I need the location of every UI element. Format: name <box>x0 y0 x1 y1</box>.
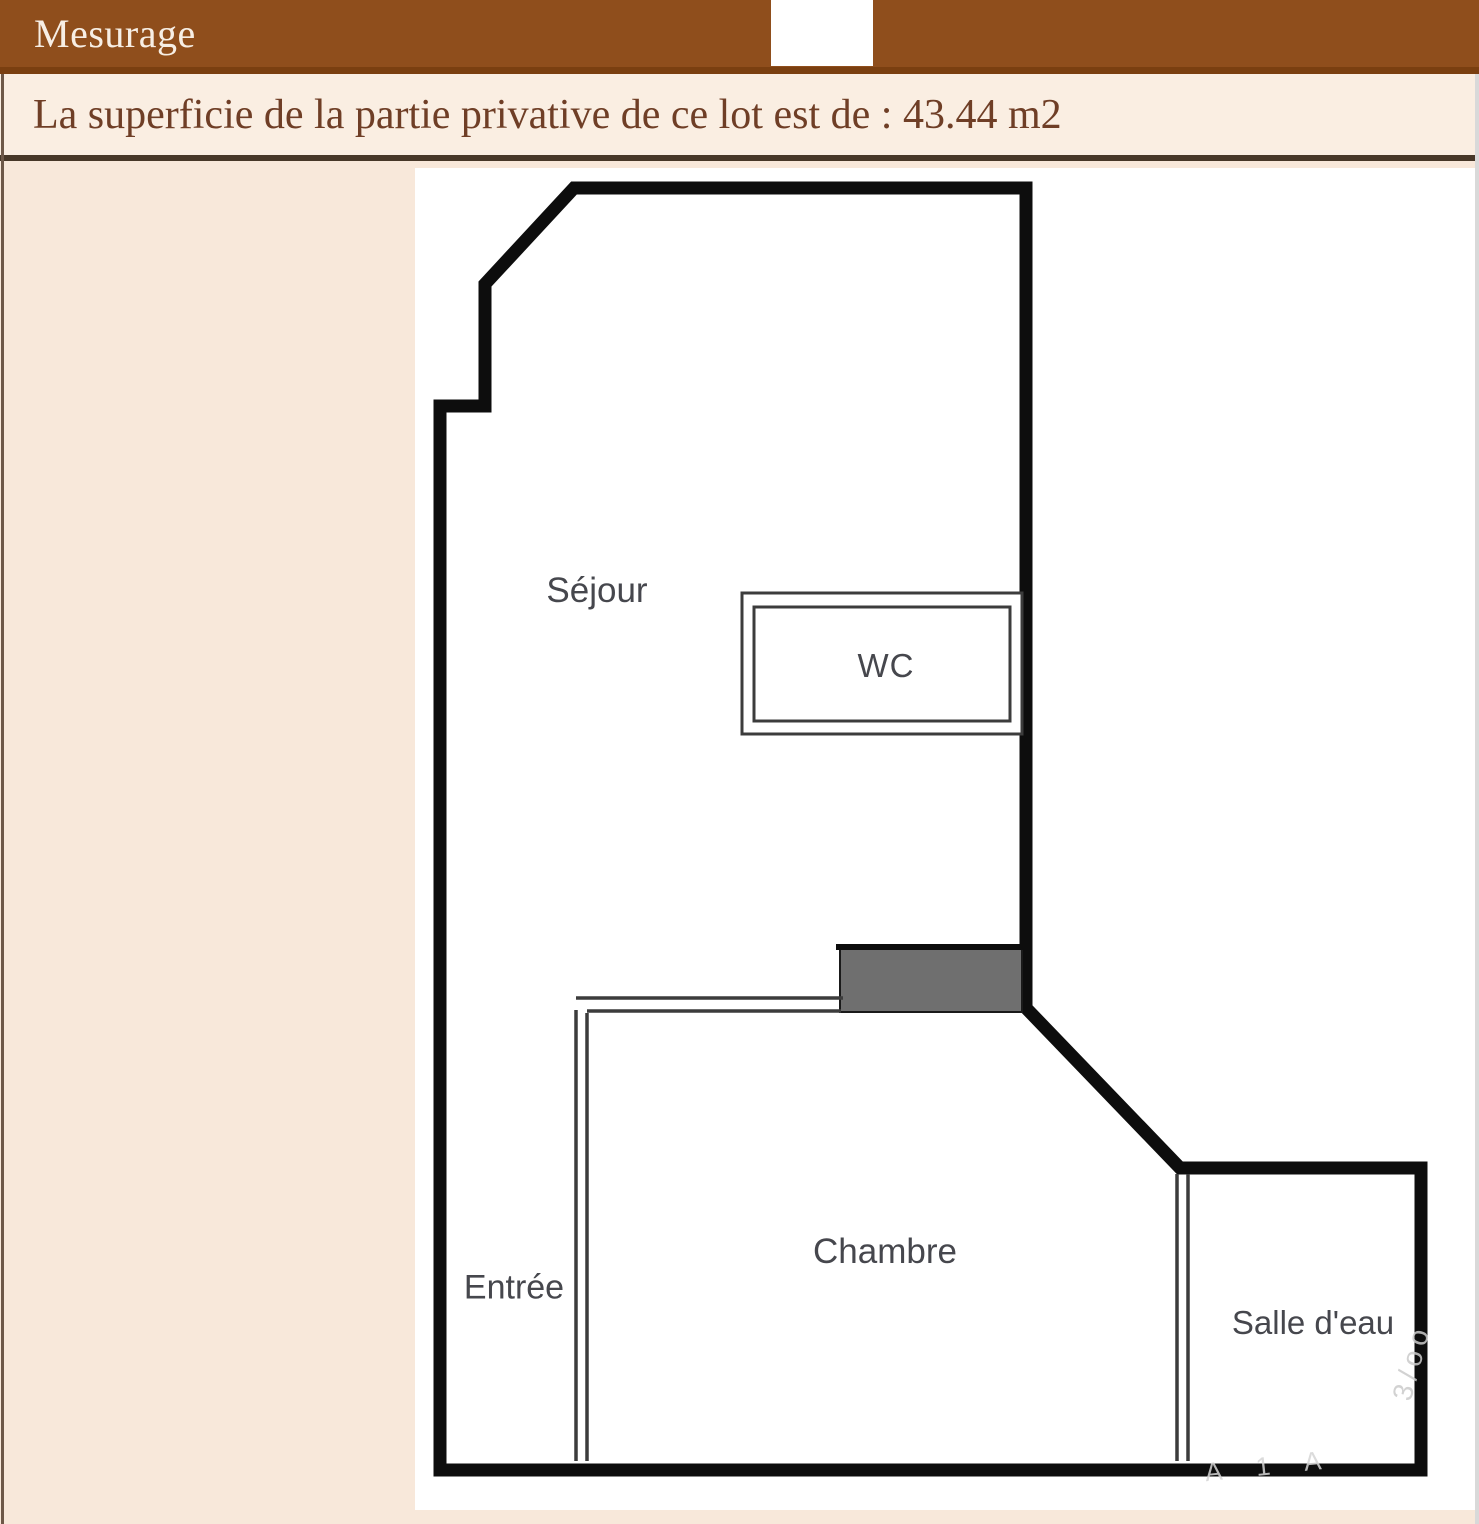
right-edge-line <box>1475 74 1479 1524</box>
room-label-salle-deau: Salle d'eau <box>1232 1304 1394 1342</box>
duct-block <box>840 945 1022 1012</box>
measurement-banner: La superficie de la partie privative de … <box>0 74 1479 161</box>
document-page: Mesurage La superficie de la partie priv… <box>0 0 1479 1524</box>
room-label-wc: WC <box>858 647 915 685</box>
header-divider <box>0 67 1479 74</box>
header-notch-blank <box>771 0 873 66</box>
room-label-entree: Entrée <box>464 1269 564 1308</box>
room-label-sejour: Séjour <box>546 571 647 611</box>
room-label-chambre: Chambre <box>813 1232 957 1272</box>
page-title: Mesurage <box>0 10 196 57</box>
left-edge-line <box>1 74 4 1524</box>
measurement-text: La superficie de la partie privative de … <box>0 91 1062 139</box>
header-bar: Mesurage <box>0 0 1479 67</box>
partition-lines <box>576 998 1188 1461</box>
